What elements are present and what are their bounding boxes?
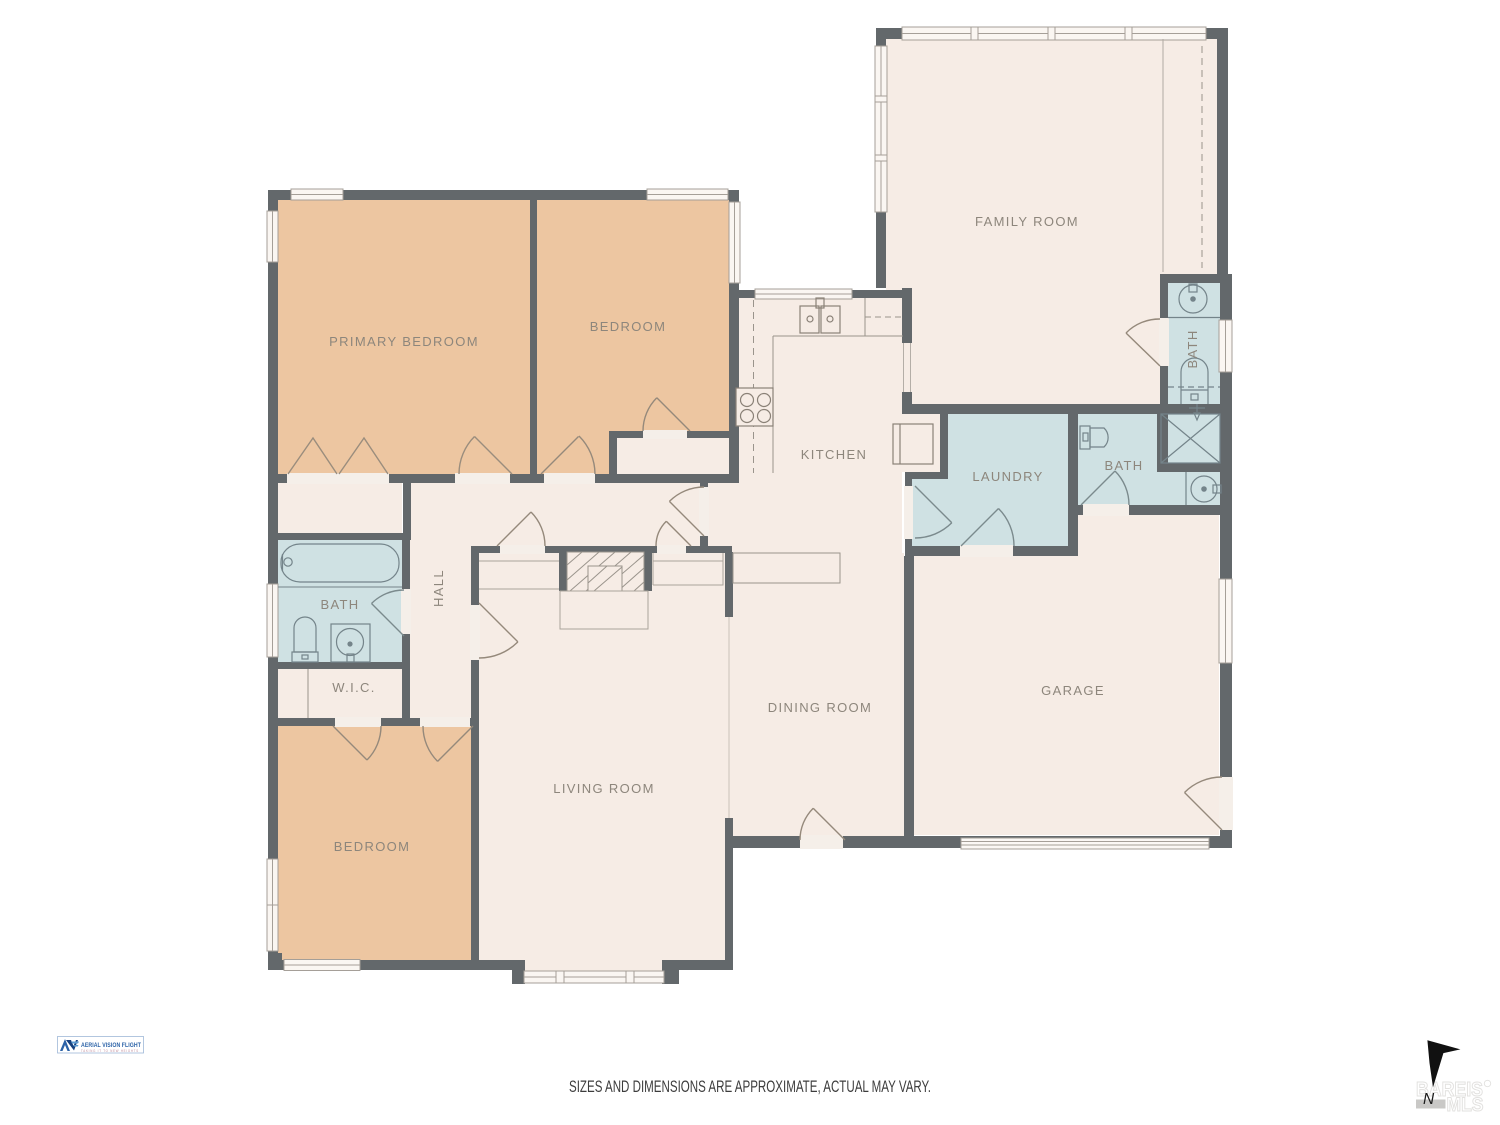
svg-text:W.I.C.: W.I.C.: [332, 680, 376, 695]
svg-text:BEDROOM: BEDROOM: [590, 319, 667, 334]
svg-text:BEDROOM: BEDROOM: [334, 839, 411, 854]
svg-text:LAUNDRY: LAUNDRY: [972, 469, 1043, 484]
svg-text:KITCHEN: KITCHEN: [801, 447, 868, 462]
svg-text:LIVING ROOM: LIVING ROOM: [553, 781, 655, 796]
svg-text:DINING ROOM: DINING ROOM: [768, 700, 872, 715]
svg-text:GARAGE: GARAGE: [1041, 683, 1105, 698]
svg-text:BATH: BATH: [1104, 458, 1143, 473]
svg-text:MLS: MLS: [1447, 1095, 1484, 1116]
svg-text:BATH: BATH: [320, 597, 359, 612]
svg-text:HALL: HALL: [431, 569, 446, 607]
svg-text:BATH: BATH: [1185, 329, 1200, 368]
svg-text:AERIAL VISION FLIGHT: AERIAL VISION FLIGHT: [81, 1042, 141, 1049]
svg-text:N: N: [1423, 1091, 1435, 1108]
svg-text:TAKING IT TO NEW HEIGHTS: TAKING IT TO NEW HEIGHTS: [81, 1049, 139, 1053]
svg-text:FAMILY ROOM: FAMILY ROOM: [975, 214, 1079, 229]
svg-text:SIZES AND DIMENSIONS ARE APPRO: SIZES AND DIMENSIONS ARE APPROXIMATE, AC…: [569, 1077, 931, 1096]
svg-text:PRIMARY BEDROOM: PRIMARY BEDROOM: [329, 334, 479, 349]
